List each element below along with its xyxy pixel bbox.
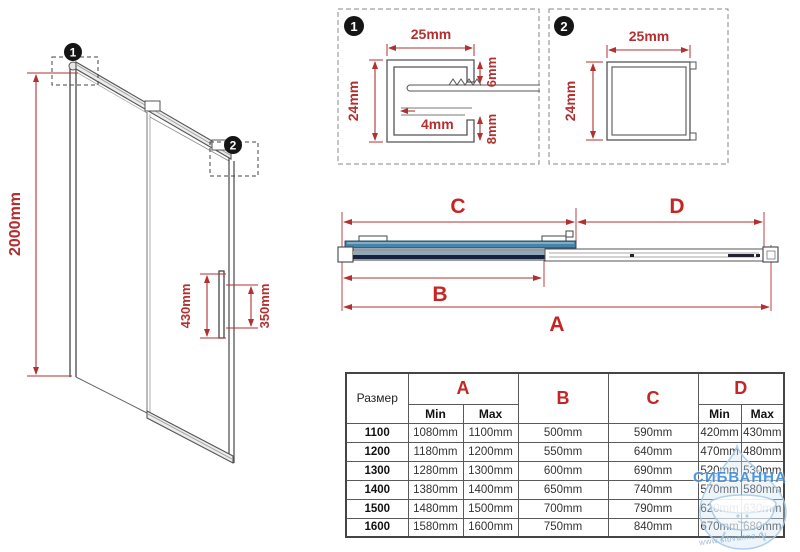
- d-max-cell: 480mm: [741, 442, 784, 461]
- bottom-rail: [147, 411, 233, 463]
- section-assembly: [338, 231, 778, 262]
- d-max-header: Max: [741, 404, 784, 423]
- col-header-c: C: [608, 373, 698, 423]
- d-max-cell: 430mm: [741, 423, 784, 442]
- detail-2-width-label: 25mm: [629, 28, 669, 44]
- sliding-glass-bar: [345, 241, 576, 248]
- dim-label-b: B: [432, 283, 447, 306]
- a-min-cell: 1280mm: [408, 461, 463, 480]
- d-min-cell: 420mm: [698, 423, 741, 442]
- detail-1-badge: 1: [350, 19, 357, 34]
- left-wall-cap: [338, 247, 353, 262]
- detail-1-profile-section: 1 25mm 24mm 4mm 6mm 8mm: [337, 8, 540, 165]
- detail-1-width-label: 25mm: [411, 26, 451, 42]
- handle-dim-right-label: 350mm: [257, 284, 272, 329]
- d-min-header: Min: [698, 404, 741, 423]
- dim-label-a: A: [549, 313, 564, 336]
- a-min-cell: 1480mm: [408, 499, 463, 518]
- height-dim-label: 2000mm: [7, 192, 24, 256]
- dim-label-d: D: [669, 195, 684, 218]
- c-cell: 690mm: [608, 461, 698, 480]
- d-max-cell: 530mm: [741, 461, 784, 480]
- detail-1-inner-label: 4mm: [421, 116, 454, 132]
- plan-section-view: C D B A: [330, 185, 800, 360]
- a-min-header: Min: [408, 404, 463, 423]
- spec-sheet: 1 2 2000mm 430mm 350mm: [0, 0, 800, 552]
- a-min-cell: 1180mm: [408, 442, 463, 461]
- b-cell: 600mm: [518, 461, 608, 480]
- b-cell: 750mm: [518, 518, 608, 537]
- size-cell: 1200: [346, 442, 408, 461]
- table-row: 1200 1180mm 1200mm 550mm 640mm 470mm 480…: [346, 442, 784, 461]
- table-row: 1600 1580mm 1600mm 750mm 840mm 670mm 680…: [346, 518, 784, 537]
- d-min-cell: 470mm: [698, 442, 741, 461]
- handle-dim-left-label: 430mm: [178, 284, 193, 329]
- c-cell: 840mm: [608, 518, 698, 537]
- size-table-container: Размер A B C D Min Max Min Max 1100 1080…: [345, 372, 785, 538]
- a-max-cell: 1300mm: [463, 461, 518, 480]
- d-min-cell: 520mm: [698, 461, 741, 480]
- b-cell: 700mm: [518, 499, 608, 518]
- detail-1-lower-label: 8mm: [484, 114, 499, 144]
- a-max-header: Max: [463, 404, 518, 423]
- a-max-cell: 1500mm: [463, 499, 518, 518]
- a-min-cell: 1580mm: [408, 518, 463, 537]
- dim-label-c: C: [450, 195, 465, 218]
- size-cell: 1400: [346, 480, 408, 499]
- size-cell: 1500: [346, 499, 408, 518]
- a-max-cell: 1100mm: [463, 423, 518, 442]
- d-min-cell: 570mm: [698, 480, 741, 499]
- size-cell: 1600: [346, 518, 408, 537]
- table-header-row: Размер A B C D: [346, 373, 784, 404]
- wall-profile: [69, 62, 77, 377]
- marker-1-number: 1: [70, 46, 77, 60]
- c-cell: 590mm: [608, 423, 698, 442]
- d-min-cell: 670mm: [698, 518, 741, 537]
- b-cell: 550mm: [518, 442, 608, 461]
- rail-bar-dark: [353, 255, 546, 259]
- a-max-cell: 1600mm: [463, 518, 518, 537]
- handle-dimension-350: 350mm: [226, 284, 272, 329]
- detail-1-upper-label: 6mm: [484, 57, 499, 87]
- c-cell: 640mm: [608, 442, 698, 461]
- size-cell: 1100: [346, 423, 408, 442]
- col-header-a: A: [408, 373, 518, 404]
- col-header-d: D: [698, 373, 784, 404]
- fixed-glass-panel: [76, 72, 150, 414]
- a-min-cell: 1380mm: [408, 480, 463, 499]
- detail-2-height-label: 24mm: [562, 81, 578, 121]
- table-row: 1300 1280mm 1300mm 600mm 690mm 520mm 530…: [346, 461, 784, 480]
- door-perspective-view: 1 2 2000mm 430mm 350mm: [0, 0, 310, 552]
- roller-block: [145, 101, 160, 111]
- square-profile-shape: [607, 62, 696, 140]
- size-table: Размер A B C D Min Max Min Max 1100 1080…: [345, 372, 785, 538]
- size-cell: 1300: [346, 461, 408, 480]
- d-min-cell: 620mm: [698, 499, 741, 518]
- b-cell: 650mm: [518, 480, 608, 499]
- detail-2-profile-section: 2 25mm 24mm: [548, 8, 729, 165]
- col-header-b: B: [518, 373, 608, 423]
- c-cell: 740mm: [608, 480, 698, 499]
- top-rail: [76, 62, 231, 159]
- table-row: 1400 1380mm 1400mm 650mm 740mm 570mm 580…: [346, 480, 784, 499]
- table-row: 1500 1480mm 1500mm 700mm 790mm 620mm 630…: [346, 499, 784, 518]
- size-header: Размер: [346, 373, 408, 423]
- a-max-cell: 1200mm: [463, 442, 518, 461]
- b-cell: 500mm: [518, 423, 608, 442]
- detail-1-height-label: 24mm: [345, 81, 361, 121]
- d-max-cell: 580mm: [741, 480, 784, 499]
- rail-bar-light: [353, 251, 546, 255]
- a-min-cell: 1080mm: [408, 423, 463, 442]
- a-max-cell: 1400mm: [463, 480, 518, 499]
- detail-2-badge: 2: [560, 19, 567, 34]
- marker-2-number: 2: [230, 139, 237, 153]
- d-max-cell: 680mm: [741, 518, 784, 537]
- table-row: 1100 1080mm 1100mm 500mm 590mm 420mm 430…: [346, 423, 784, 442]
- d-max-cell: 630mm: [741, 499, 784, 518]
- c-cell: 790mm: [608, 499, 698, 518]
- door-handle: [219, 271, 224, 338]
- height-dimension: 2000mm: [7, 73, 78, 376]
